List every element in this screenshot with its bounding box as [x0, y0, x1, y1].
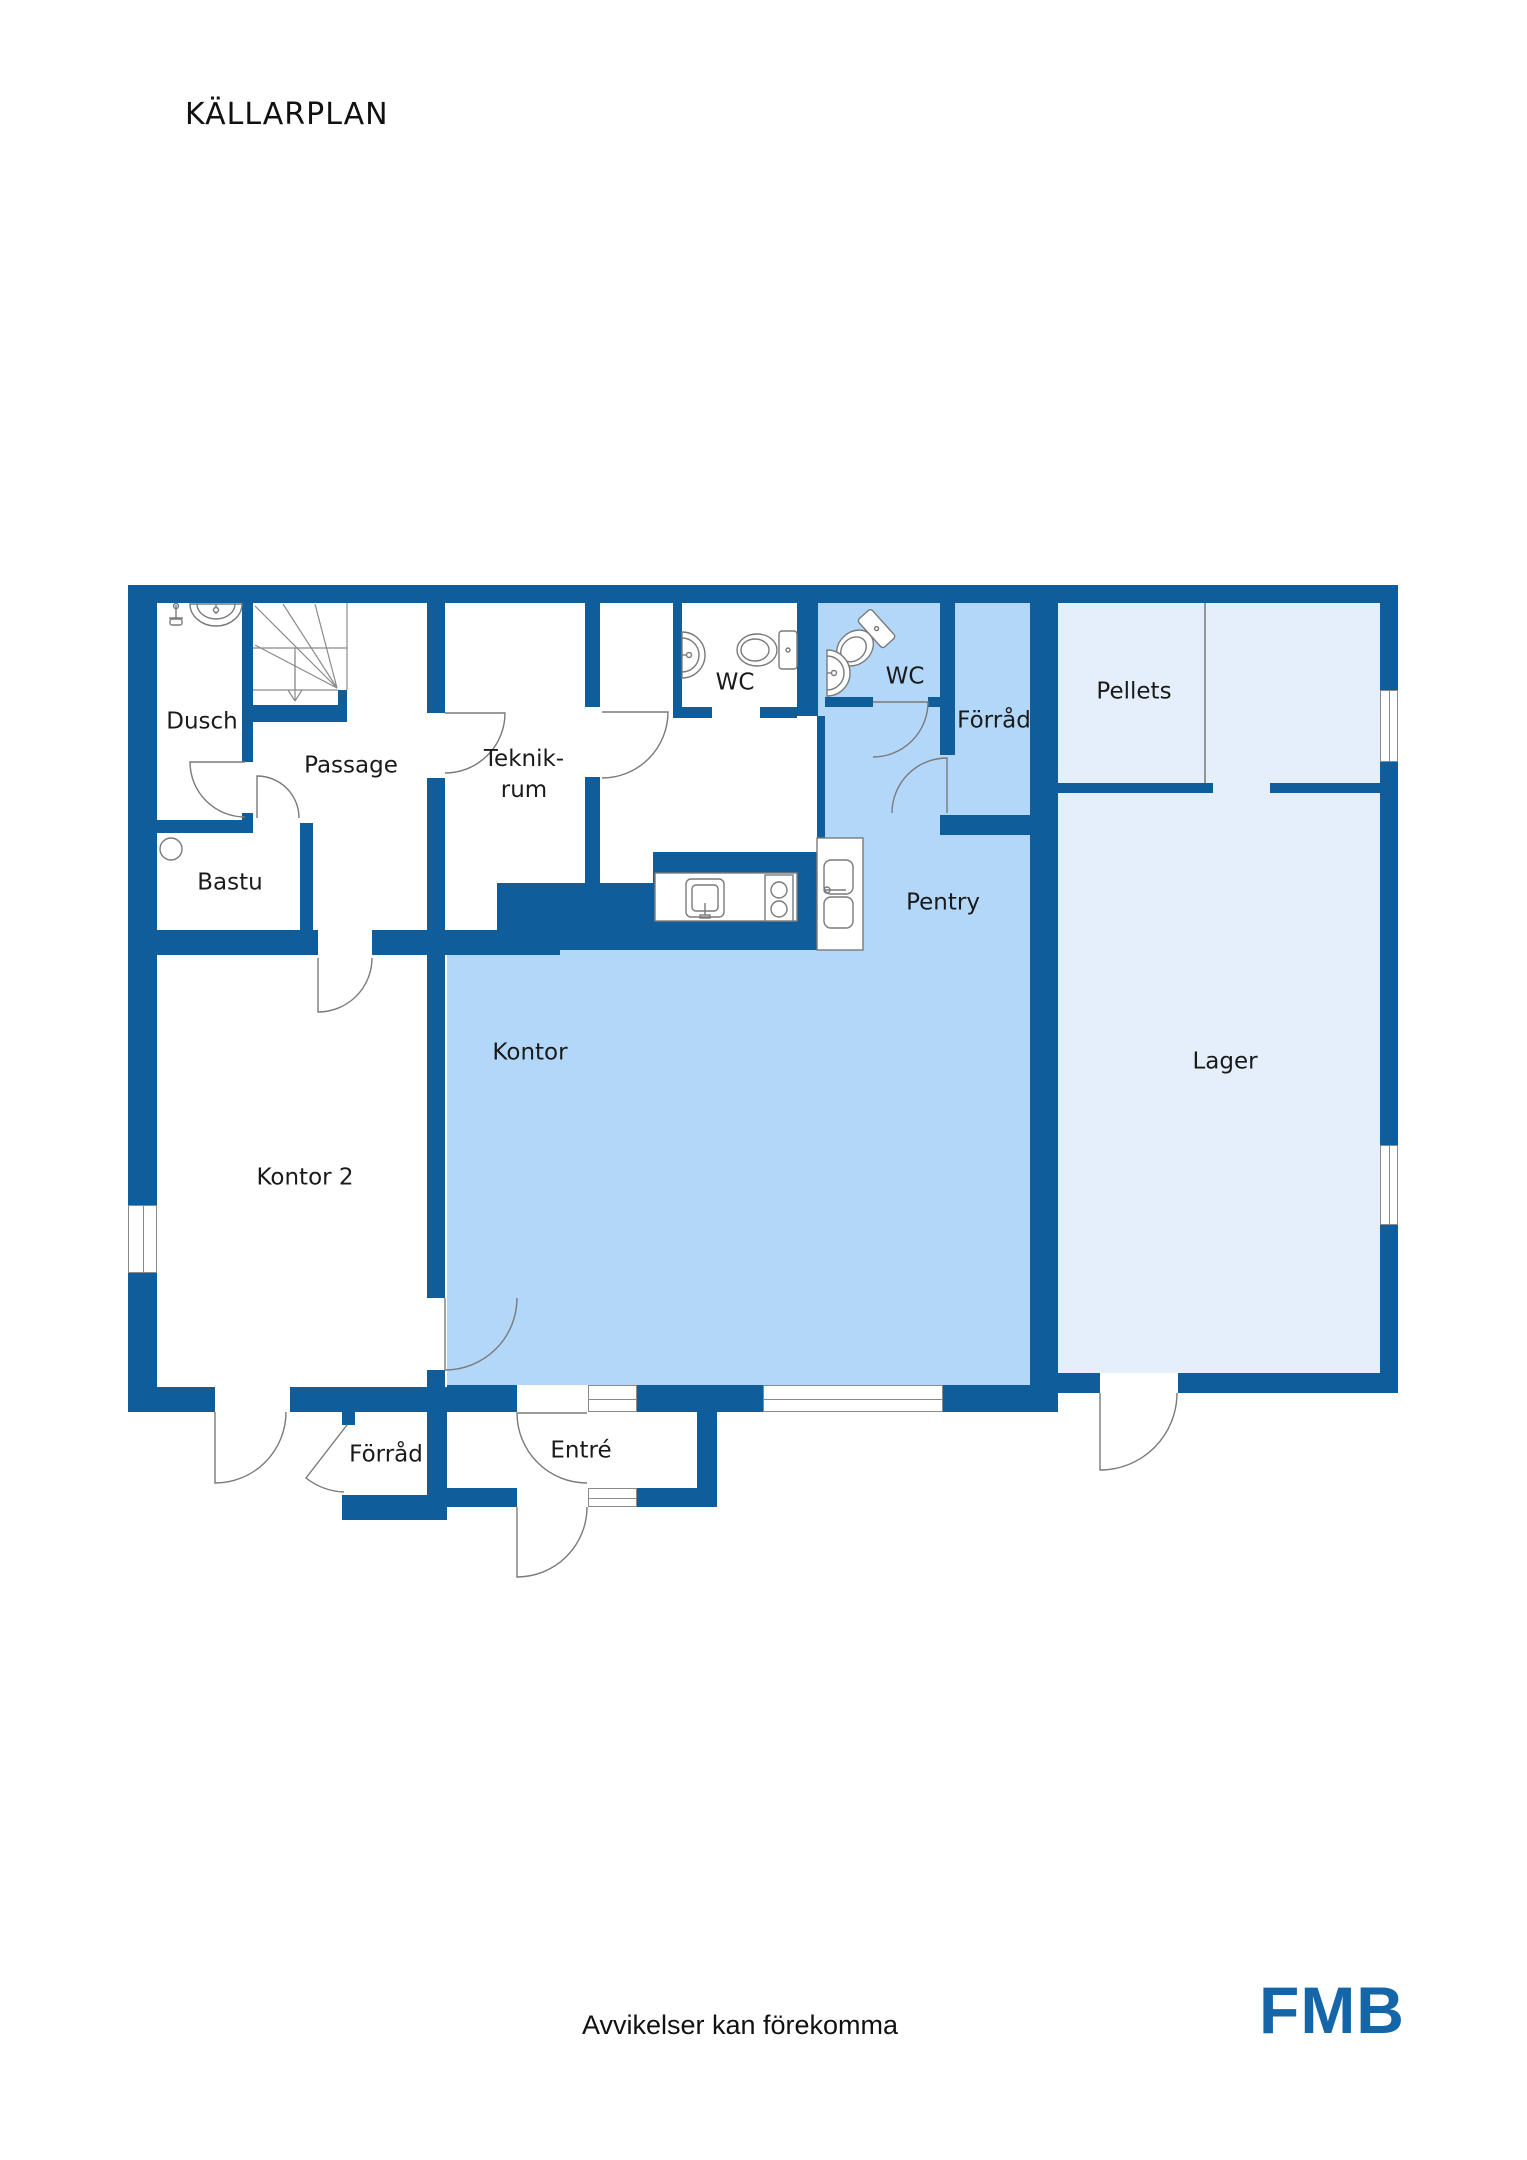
- kitchen-counter: [655, 873, 797, 921]
- bathroom-sink-icon: [190, 604, 242, 626]
- toilet-icon: [737, 631, 797, 669]
- room-label-pentry: Pentry: [906, 887, 980, 918]
- room-label-kontor: Kontor: [492, 1037, 567, 1068]
- bathroom-sink-icon: [682, 632, 705, 678]
- double-sink-icon: [817, 838, 863, 950]
- room-label-bastu: Bastu: [197, 867, 262, 898]
- room-label-entre: Entré: [550, 1435, 611, 1466]
- door-dusch: [190, 762, 245, 817]
- door-bastu: [257, 776, 299, 818]
- room-label-kontor-2: Kontor 2: [256, 1162, 353, 1193]
- door-forrad-top: [892, 758, 947, 813]
- room-label-forrad-top: Förråd: [957, 705, 1031, 736]
- room-label-wc-2: WC: [886, 661, 925, 692]
- door-lager-exterior: [1100, 1393, 1177, 1470]
- room-label-lager: Lager: [1192, 1046, 1257, 1077]
- door-kontor: [445, 1298, 517, 1370]
- shower-mixer-icon: [169, 604, 183, 626]
- room-label-forrad-bottom: Förråd: [349, 1439, 423, 1470]
- room-label-teknikrum: Teknik- rum: [484, 744, 564, 806]
- room-label-wc-1: WC: [716, 667, 755, 698]
- floor-plan: Dusch Passage Teknik- rum WC WC Förråd P…: [0, 0, 1527, 2160]
- door-wc-2: [873, 702, 928, 757]
- plan-symbols: [0, 0, 1527, 2160]
- floorplan-page: KÄLLARPLAN: [0, 0, 1527, 2160]
- stairs-icon: [253, 603, 347, 701]
- stove-icon: [765, 875, 793, 921]
- door-forrad-bottom: [306, 1425, 347, 1492]
- sauna-heater-icon: [160, 838, 182, 860]
- door-exterior-kontor-2: [215, 1412, 286, 1483]
- door-arcs: [190, 702, 1177, 1577]
- door-entre-exterior: [517, 1507, 587, 1577]
- room-label-dusch: Dusch: [166, 706, 238, 737]
- door-kontor-2: [318, 958, 372, 1012]
- room-label-pellets: Pellets: [1096, 676, 1171, 707]
- room-label-passage: Passage: [304, 750, 398, 781]
- door-corridor: [602, 712, 668, 778]
